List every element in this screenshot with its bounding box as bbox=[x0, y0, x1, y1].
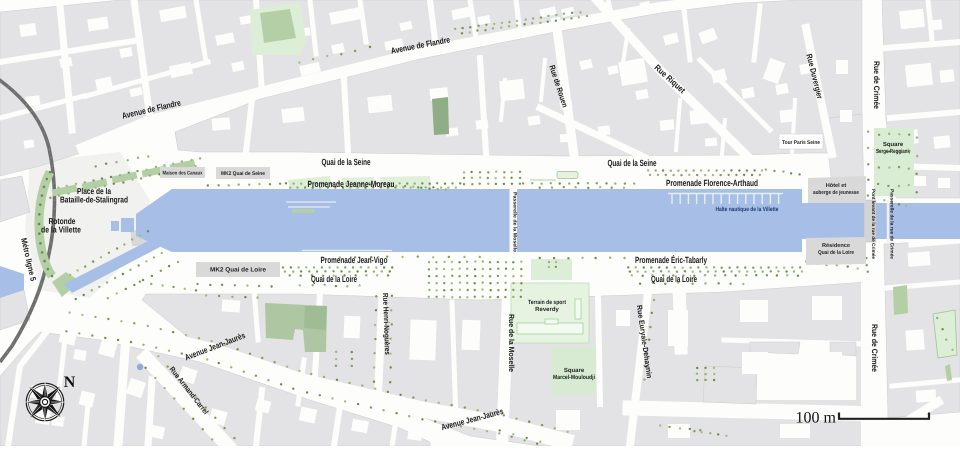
svg-text:Terrain de sport: Terrain de sport bbox=[528, 299, 566, 306]
svg-text:Quai de la Loire: Quai de la Loire bbox=[818, 249, 854, 256]
svg-text:MK2 Quai de Loire: MK2 Quai de Loire bbox=[210, 267, 267, 274]
svg-text:Bataille-de-Stalingrad: Bataille-de-Stalingrad bbox=[60, 195, 128, 205]
svg-text:100 m: 100 m bbox=[796, 410, 837, 427]
svg-text:Promenade Jean-Vigo: Promenade Jean-Vigo bbox=[321, 255, 388, 265]
svg-text:Serge-Reggiani,: Serge-Reggiani, bbox=[876, 148, 910, 155]
svg-text:Maison des Canaux: Maison des Canaux bbox=[163, 170, 203, 176]
svg-text:N: N bbox=[64, 374, 76, 391]
svg-text:Quai de la Loire: Quai de la Loire bbox=[651, 274, 697, 284]
svg-text:Promenade Éric-Tabarly: Promenade Éric-Tabarly bbox=[635, 255, 707, 265]
svg-text:Promenade Jeanne-Moreau: Promenade Jeanne-Moreau bbox=[308, 179, 395, 189]
svg-text:Tour Paris Seine: Tour Paris Seine bbox=[782, 140, 820, 146]
svg-text:Quai de la Seine: Quai de la Seine bbox=[322, 157, 371, 167]
svg-text:Reverdy: Reverdy bbox=[535, 306, 559, 313]
svg-text:Square: Square bbox=[883, 141, 904, 148]
svg-text:Promenade Florence-Arthaud: Promenade Florence-Arthaud bbox=[666, 178, 758, 188]
svg-text:Passerelle de la rue de Crimée: Passerelle de la rue de Crimée bbox=[889, 189, 895, 259]
svg-text:Quai de la Seine: Quai de la Seine bbox=[608, 158, 657, 168]
svg-text:auberge de jeunesse: auberge de jeunesse bbox=[813, 189, 859, 196]
svg-text:Rue de la Moselle: Rue de la Moselle bbox=[507, 314, 516, 372]
svg-text:Hôtel et: Hôtel et bbox=[826, 182, 847, 189]
svg-text:Résidence: Résidence bbox=[822, 242, 850, 249]
svg-text:Quai de la Loire: Quai de la Loire bbox=[311, 274, 357, 284]
svg-text:Marcel-Mouloudji: Marcel-Mouloudji bbox=[553, 374, 595, 381]
svg-text:Rue de Crimée: Rue de Crimée bbox=[872, 61, 881, 109]
svg-text:MK2 Quai de Seine: MK2 Quai de Seine bbox=[221, 171, 265, 177]
svg-text:Halte nautique de la Villette: Halte nautique de la Villette bbox=[716, 206, 780, 213]
svg-text:Pont levant de la rue de Crimé: Pont levant de la rue de Crimée bbox=[870, 189, 876, 259]
svg-text:Rue de Crimée: Rue de Crimée bbox=[870, 324, 879, 372]
svg-text:de la Villette: de la Villette bbox=[41, 225, 81, 235]
svg-text:Passerelle de la Moselle: Passerelle de la Moselle bbox=[512, 192, 518, 252]
svg-text:Square: Square bbox=[564, 367, 585, 374]
